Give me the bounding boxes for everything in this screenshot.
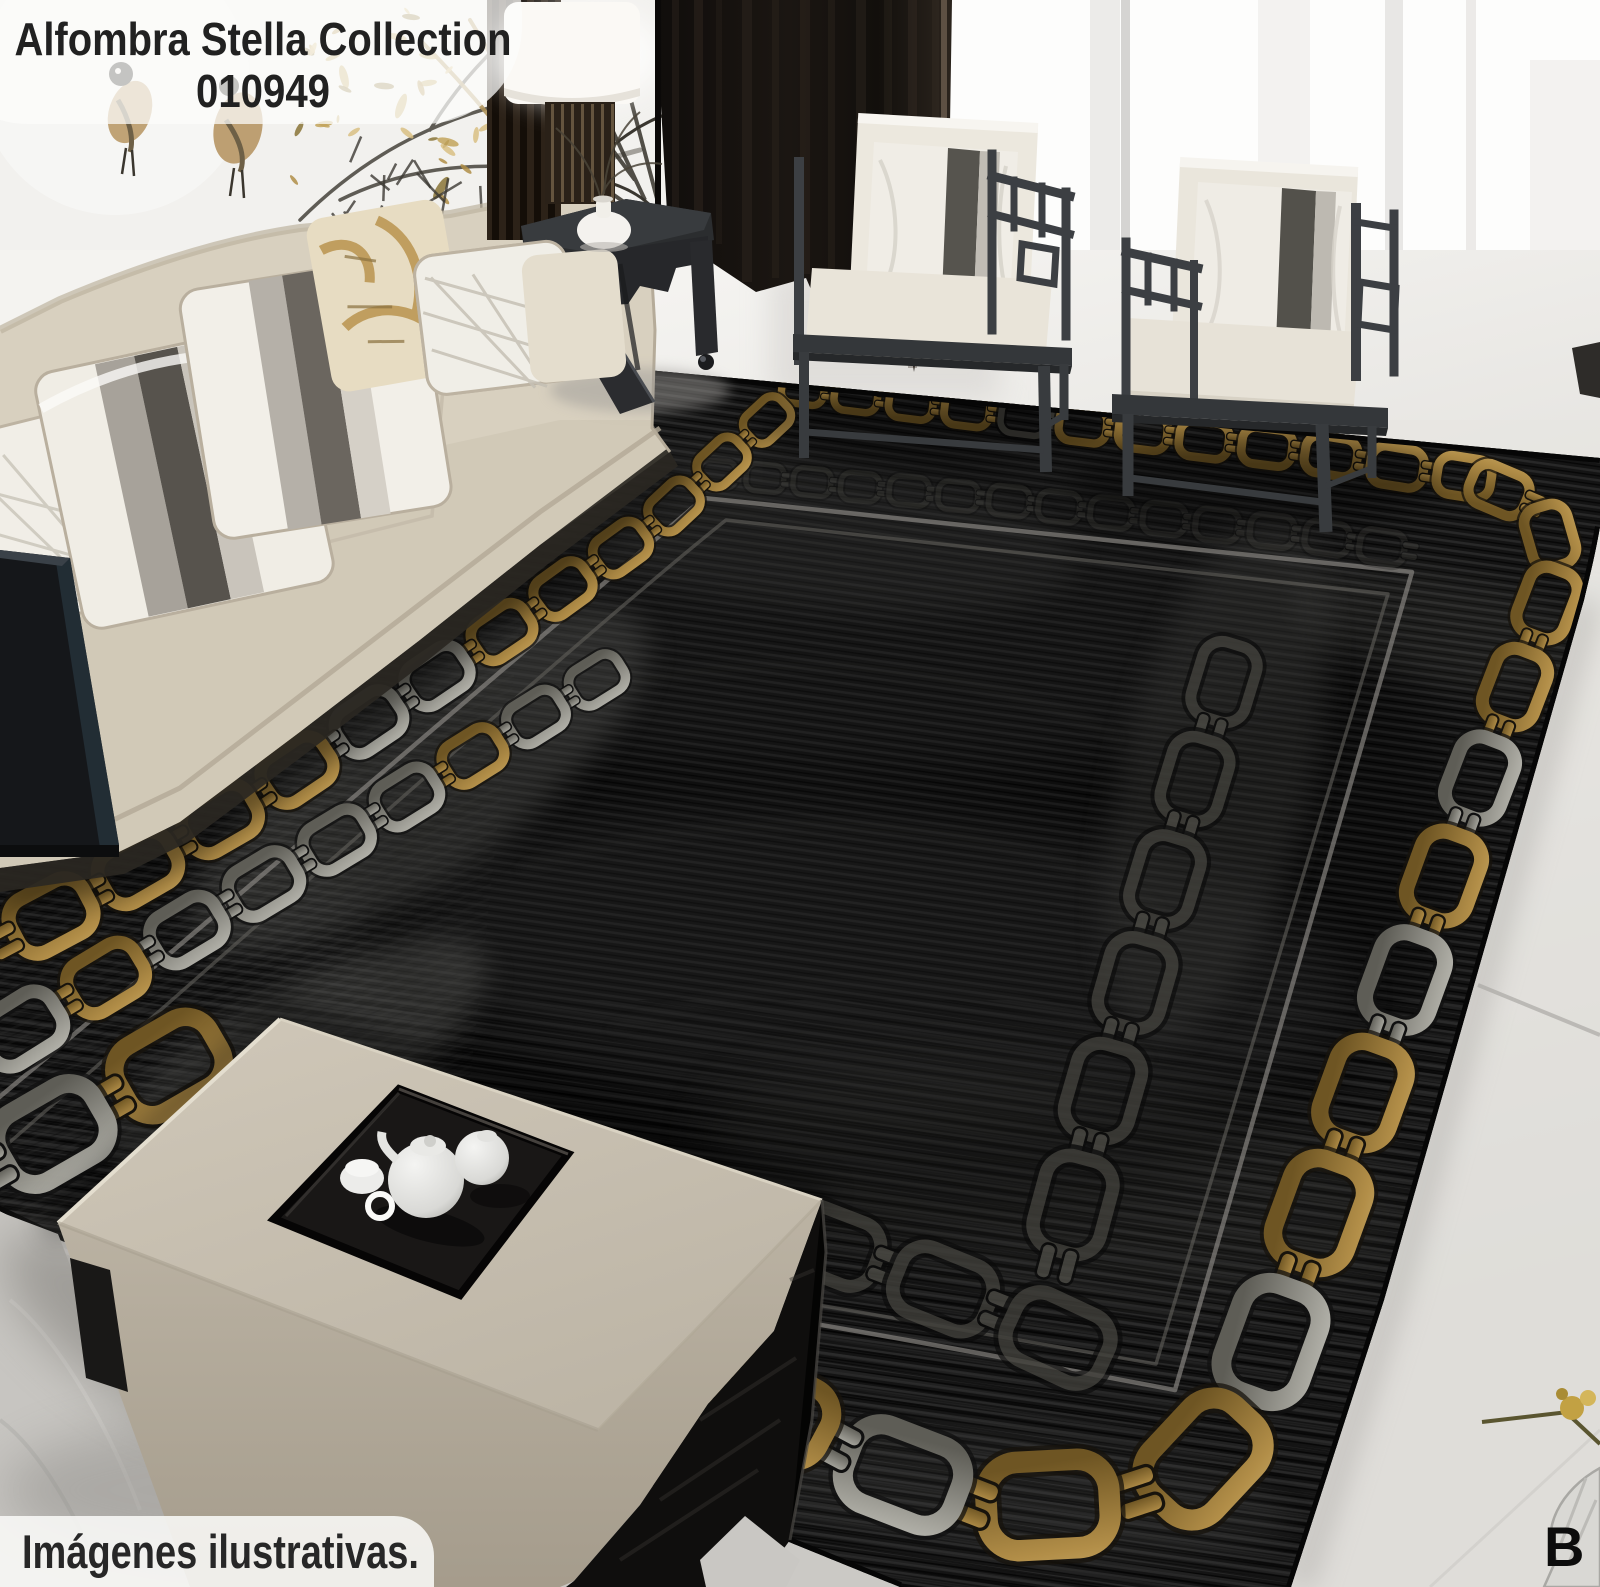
svg-text:B: B	[1544, 1515, 1584, 1578]
svg-text:Imágenes ilustrativas.: Imágenes ilustrativas.	[22, 1525, 419, 1578]
svg-text:010949: 010949	[196, 65, 330, 117]
svg-text:Alfombra Stella Collection: Alfombra Stella Collection	[15, 13, 512, 65]
